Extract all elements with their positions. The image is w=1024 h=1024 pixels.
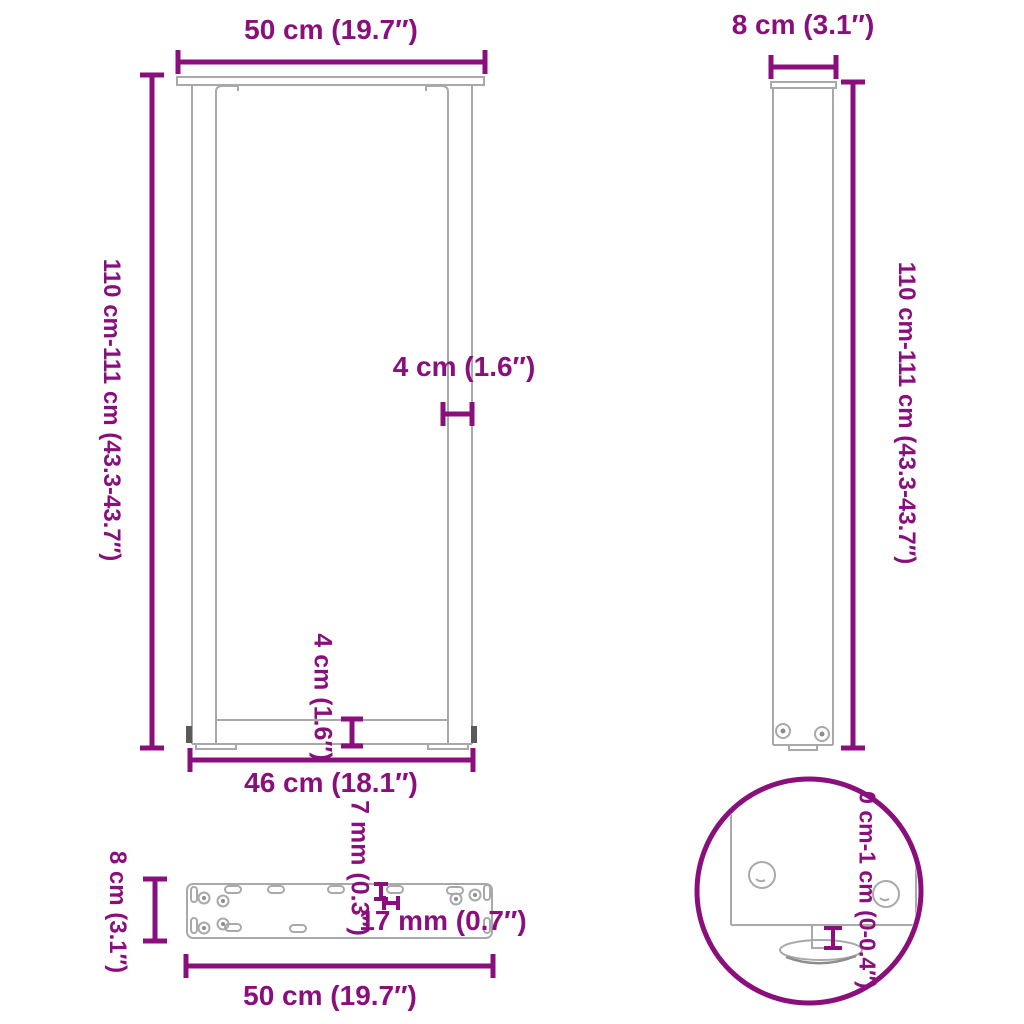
dim-label-side-height: 110 cm-111 cm (43.3-43.7″) <box>892 262 920 564</box>
dim-label-plate-depth: 8 cm (3.1″) <box>103 851 131 973</box>
side-foot-pad <box>789 745 817 750</box>
dim-label-crossbar-height: 4 cm (1.6″) <box>308 633 337 760</box>
dim-label-inner-width: 46 cm (18.1″) <box>244 767 418 799</box>
dim-label-adjustable-range: 0 cm-1 cm (0-0.4″) <box>854 791 881 989</box>
front-right-foot-pad <box>428 744 468 749</box>
slot-icon <box>191 887 197 902</box>
dim-label-front-height: 110 cm-111 cm (43.3-43.7″) <box>97 259 125 561</box>
detail-screw-icon <box>749 862 775 888</box>
slot-icon <box>387 886 403 893</box>
side-view-drawing <box>771 82 836 750</box>
side-top-plate <box>771 82 836 88</box>
slot-icon <box>268 886 284 893</box>
slot-icon <box>225 886 241 893</box>
detail-screw-slot-icon <box>880 898 889 900</box>
slot-icon <box>191 918 197 933</box>
slot-icon <box>328 886 344 893</box>
dim-label-slot-length: 17 mm (0.7″) <box>359 905 526 937</box>
side-screw-dot-icon <box>820 732 825 737</box>
product-dimension-diagram: 50 cm (19.7″) 8 cm (3.1″) 110 cm-111 cm … <box>0 0 1024 1024</box>
side-dimension-lines <box>771 55 865 748</box>
slot-icon <box>484 885 490 900</box>
front-left-foot-pad <box>196 744 236 749</box>
slot-icon <box>290 925 306 932</box>
dim-label-plate-width: 50 cm (19.7″) <box>243 980 417 1012</box>
front-left-adjuster-icon <box>186 726 192 743</box>
detail-dimension-lines <box>824 928 842 948</box>
side-screw-dot-icon <box>781 729 786 734</box>
front-left-bracket <box>216 86 238 92</box>
front-right-bracket <box>426 86 448 92</box>
detail-screw-slot-icon <box>756 879 765 881</box>
dim-label-front-width: 50 cm (19.7″) <box>244 14 418 46</box>
front-right-adjuster-icon <box>471 726 477 743</box>
dim-label-leg-thickness: 4 cm (1.6″) <box>393 351 536 383</box>
dim-label-side-depth: 8 cm (3.1″) <box>732 9 875 41</box>
front-top-plate <box>177 77 484 85</box>
